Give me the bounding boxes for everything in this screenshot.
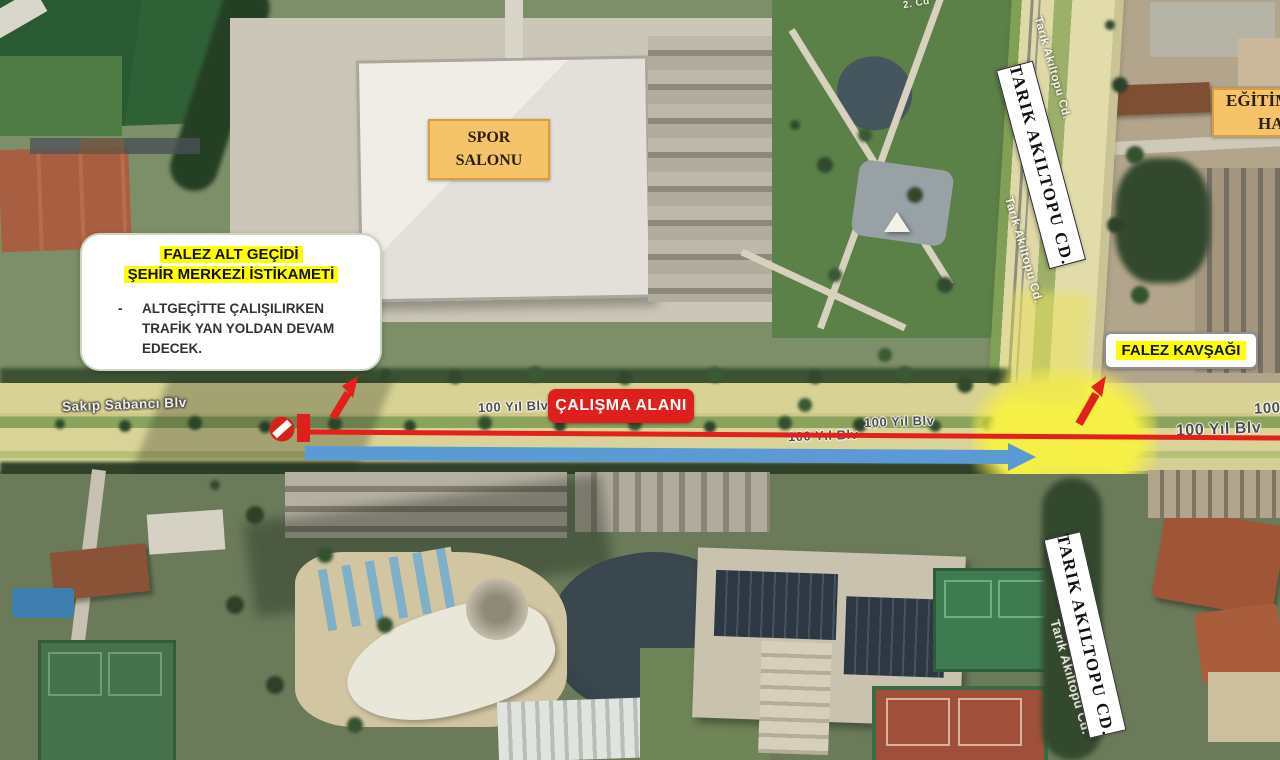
callout-bullet: - ALTGEÇİTTE ÇALIŞILIRKEN TRAFİK YAN YOL… (118, 299, 380, 360)
info-callout: FALEZ ALT GEÇİDİ ŞEHİR MERKEZİ İSTİKAMET… (80, 233, 382, 371)
spor-salonu-line1: SPOR (468, 127, 511, 149)
barrier-red-rect (297, 414, 310, 442)
arrow-shaft (333, 393, 348, 418)
calisma-alani-label: ÇALIŞMA ALANI (548, 389, 694, 423)
callout-bullet-text: ALTGEÇİTTE ÇALIŞILIRKEN TRAFİK YAN YOLDA… (142, 299, 356, 360)
closed-route-red-line (308, 432, 1280, 438)
callout-title-line2: ŞEHİR MERKEZİ İSTİKAMETİ (124, 266, 339, 283)
callout-title: FALEZ ALT GEÇİDİ ŞEHİR MERKEZİ İSTİKAMET… (82, 245, 380, 286)
arrow-shaft (1079, 394, 1096, 424)
traffic-plan-map: Sakıp Sabancı Blv 100 Yıl Blv 100 Yıl Bl… (0, 0, 1280, 760)
detour-blue-arrow (305, 443, 1036, 471)
kavsagi-pointer-arrow (1079, 376, 1106, 424)
egitim-line2: HA (1226, 113, 1280, 136)
callout-title-line1: FALEZ ALT GEÇİDİ (160, 246, 303, 263)
spor-salonu-label: SPOR SALONU (428, 119, 550, 180)
callout-pointer-arrow (333, 376, 358, 418)
egitim-line1: EĞİTİM (1226, 90, 1280, 113)
spor-salonu-line2: SALONU (456, 150, 523, 172)
callout-bullet-dash: - (118, 299, 142, 360)
egitim-label: EĞİTİM HA (1212, 88, 1280, 137)
falez-kavsagi-label: FALEZ KAVŞAĞI (1104, 332, 1258, 369)
no-entry-sign-icon (270, 417, 295, 442)
falez-kavsagi-text: FALEZ KAVŞAĞI (1116, 341, 1247, 360)
